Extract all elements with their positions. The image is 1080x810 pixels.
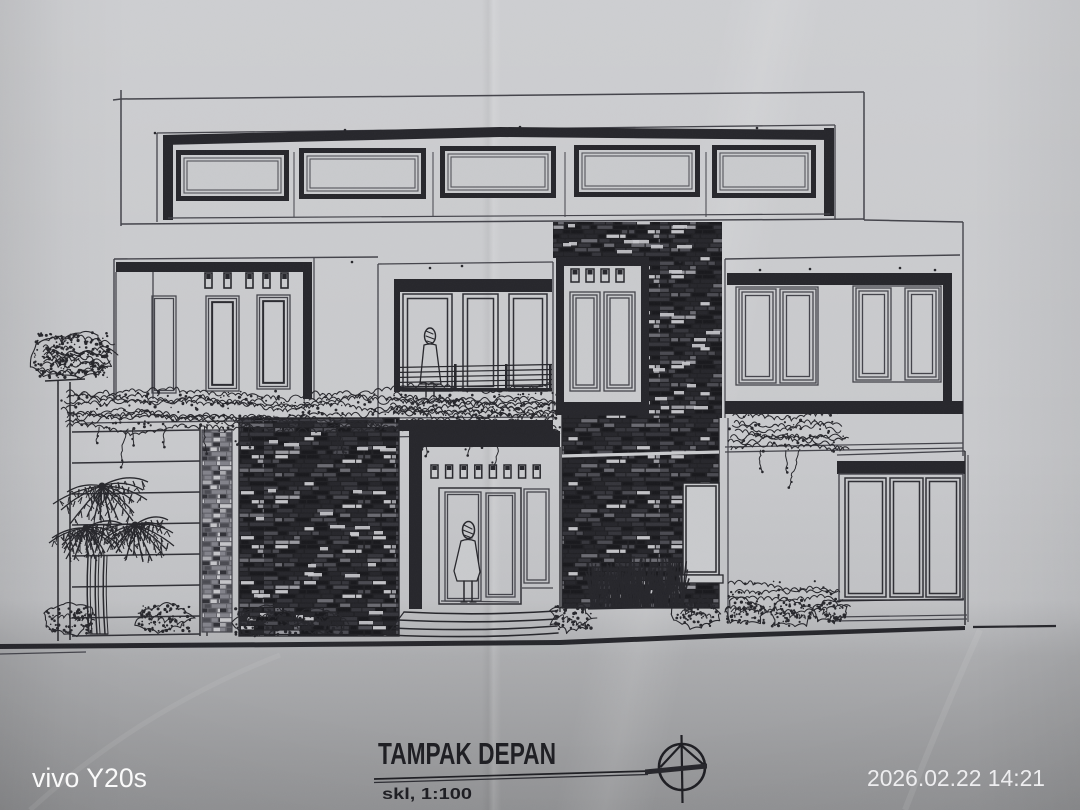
svg-text:2026.02.22 14:21: 2026.02.22 14:21 bbox=[867, 765, 1045, 791]
svg-text:vivo Y20s: vivo Y20s bbox=[32, 763, 147, 793]
